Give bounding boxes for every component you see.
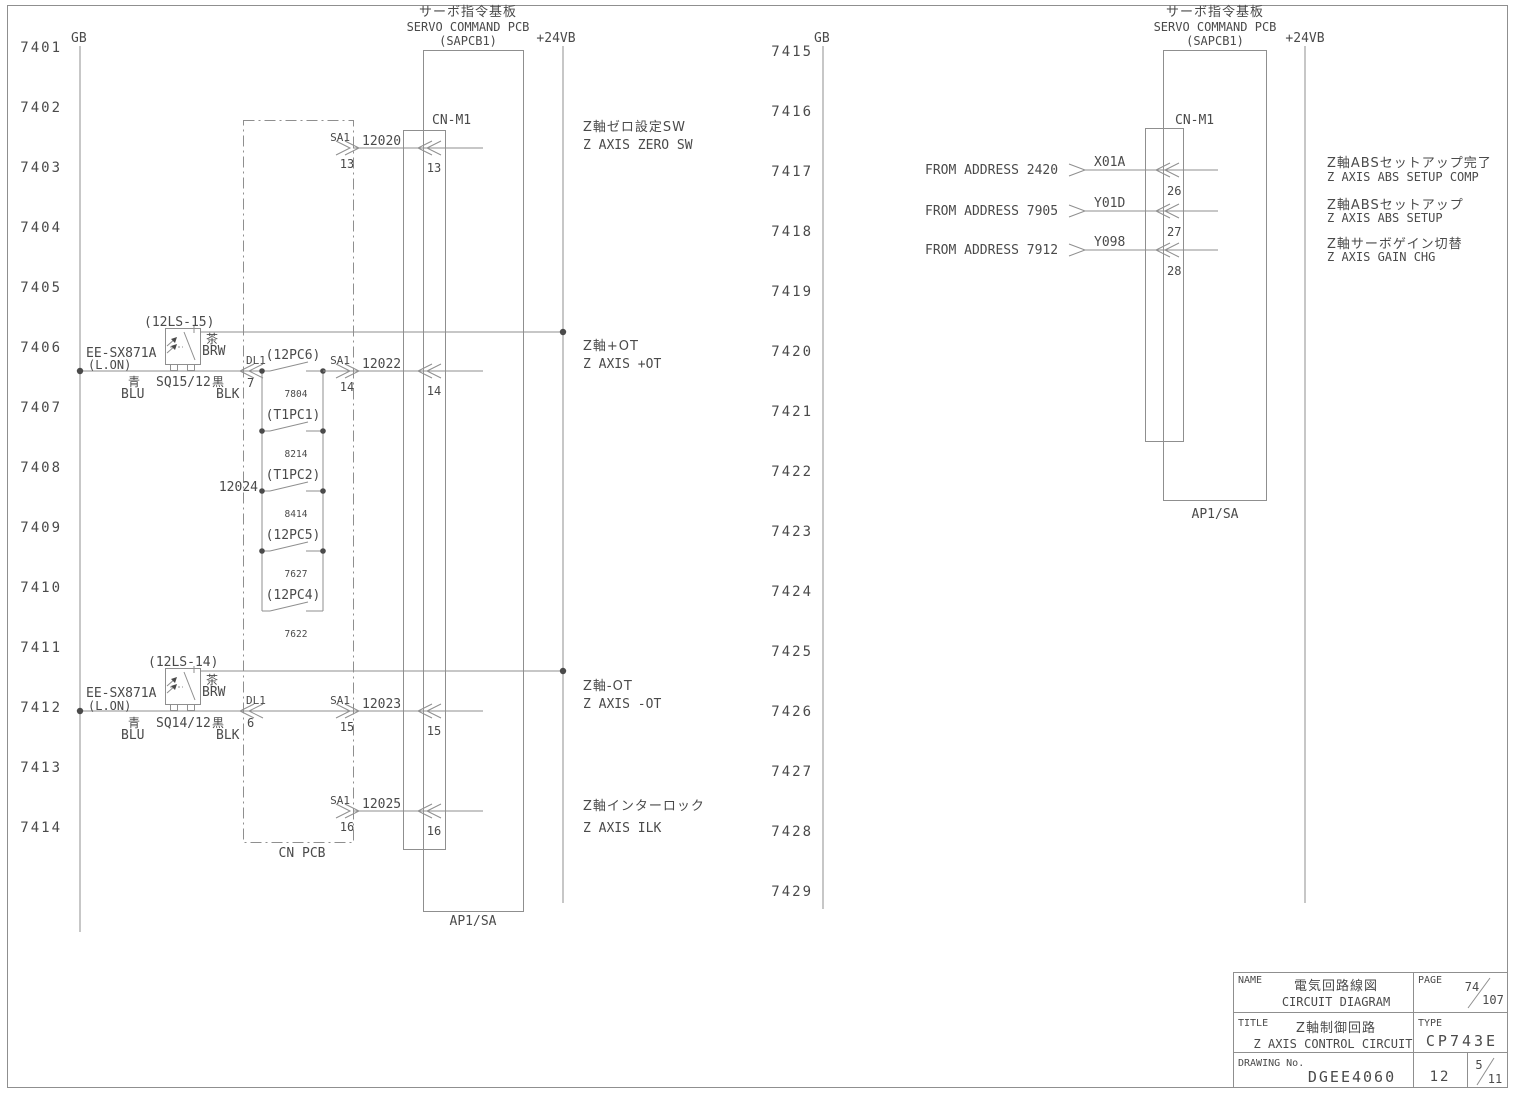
v24-label: +24VB (536, 31, 575, 46)
row-number: 7425 (771, 644, 813, 660)
signal-label-jp: Z軸ゼロ設定SW (583, 119, 686, 135)
cn-pin: 28 (1167, 264, 1181, 278)
row-number: 7413 (20, 760, 62, 776)
connector-pin: 6 (247, 716, 254, 730)
row-number: 7424 (771, 584, 813, 600)
pcb-header-right: サーボ指令基板 SERVO COMMAND PCB (SAPCB1) (1154, 5, 1277, 48)
type-value: CP743E (1426, 1032, 1498, 1050)
sheet-number: 12 (1430, 1069, 1451, 1085)
row-number: 7408 (20, 460, 62, 476)
revision-total: 11 (1488, 1072, 1502, 1086)
row-number: 7404 (20, 220, 62, 236)
row-number: 7417 (771, 164, 813, 180)
wire-number: 12020 (362, 134, 401, 149)
connector-ref: SA1 (330, 131, 350, 144)
row-number: 7412 (20, 700, 62, 716)
gb-bus-label: GB (814, 31, 830, 46)
contact-dot (320, 428, 326, 434)
cn-pin: 16 (427, 824, 441, 838)
name-field-label: NAME (1238, 975, 1262, 986)
pcb-title-en: SERVO COMMAND PCB (407, 20, 530, 34)
sensor-mode: (L.ON) (88, 358, 131, 372)
wire-number: 12022 (362, 357, 401, 372)
wire-color: BLK (216, 387, 240, 402)
sensor-tag: SQ15/12 (156, 375, 211, 390)
row-number: 7420 (771, 344, 813, 360)
row-number: 7429 (771, 884, 813, 900)
signal-label-en: Z AXIS GAIN CHG (1327, 250, 1435, 264)
circuit-diagram-canvas: 7401 7402 7403 7404 7405 7406 7407 7408 … (0, 0, 1514, 1093)
wire-number: Y098 (1094, 235, 1125, 250)
sensor-terminal (188, 365, 195, 371)
pcb-bottom-label: AP1/SA (450, 914, 497, 929)
wire-color: BRW (202, 344, 226, 359)
connector-box (404, 131, 446, 850)
row-number: 7401 (20, 40, 62, 56)
type-field-label: TYPE (1418, 1018, 1442, 1029)
circuit-diagram-page: 7401 7402 7403 7404 7405 7406 7407 7408 … (0, 0, 1514, 1093)
signal-row-gain-chg: FROM ADDRESS 7912 Y098 28 Z軸サーボゲイン切替 Z A… (925, 235, 1463, 278)
no-contact (262, 362, 323, 371)
pcb-box (424, 51, 524, 912)
row-number: 7423 (771, 524, 813, 540)
connector-ref: DL1 (246, 354, 266, 367)
connector-pin: 13 (340, 157, 354, 171)
photo-sensor-12ls14: (12LS-14) EE-SX871A (L.ON) 茶 BRW 青 BLU S… (77, 655, 566, 743)
row-number: 7419 (771, 284, 813, 300)
row-number: 7428 (771, 824, 813, 840)
row-number: 7418 (771, 224, 813, 240)
contact-label: (T1PC1) (266, 408, 321, 423)
junction-dot (560, 329, 566, 335)
connector-ref: SA1 (330, 794, 350, 807)
row-number: 7405 (20, 280, 62, 296)
cn-pin: 14 (427, 384, 441, 398)
right-row-numbers: 7415 7416 7417 7418 7419 7420 7421 7422 … (771, 44, 813, 900)
sensor-mirror-line (184, 332, 195, 360)
title-block: NAME 電気回路線図 CIRCUIT DIAGRAM PAGE 74 107 … (1234, 973, 1508, 1088)
no-contact (262, 482, 323, 491)
wire-number: 12025 (362, 797, 401, 812)
sensor-mode: (L.ON) (88, 699, 131, 713)
pcb-title-sub: (SAPCB1) (439, 34, 497, 48)
wire-color: BLK (216, 728, 240, 743)
contact-number: 8414 (285, 509, 308, 520)
row-number: 7426 (771, 704, 813, 720)
row-number: 7415 (771, 44, 813, 60)
wire-color: BLU (121, 387, 144, 402)
page-field-label: PAGE (1418, 975, 1442, 986)
cn-pin: 13 (427, 161, 441, 175)
signal-label-en: Z AXIS +OT (583, 357, 661, 372)
photo-sensor-12ls15: (12LS-15) EE-SX871A (L.ON) 茶 BRW 青 BLU S… (77, 315, 566, 402)
signal-label-jp: Z軸-OT (583, 679, 633, 694)
connector-pin: 15 (340, 720, 354, 734)
row-number: 7403 (20, 160, 62, 176)
source-chevron (1069, 205, 1085, 217)
branch-wire-number: 12024 (219, 480, 258, 495)
cn-pin: 26 (1167, 184, 1181, 198)
row-number: 7410 (20, 580, 62, 596)
junction-dot (77, 708, 83, 714)
drawing-title-en: Z AXIS CONTROL CIRCUIT (1254, 1037, 1413, 1051)
row-number: 7427 (771, 764, 813, 780)
signal-label-en: Z AXIS -OT (583, 697, 661, 712)
wire-number: 12023 (362, 697, 401, 712)
drawing-name-jp: 電気回路線図 (1294, 978, 1378, 994)
signal-row-abs-setup: FROM ADDRESS 7905 Y01D 27 Z軸ABSセットアップ Z … (925, 196, 1464, 239)
signal-row-plus-ot: SA1 12022 14 14 Z軸+OT Z AXIS +OT (323, 339, 661, 398)
signal-row-minus-ot: SA1 12023 15 15 Z軸-OT Z AXIS -OT (330, 679, 661, 738)
from-address-label: FROM ADDRESS 7905 (925, 204, 1058, 219)
cn-pcb-label: CN PCB (279, 846, 326, 861)
row-number: 7416 (771, 104, 813, 120)
contact-label: (12PC4) (266, 588, 321, 603)
wire-color: BLU (121, 728, 144, 743)
sensor-tag: SQ14/12 (156, 716, 211, 731)
row-number: 7406 (20, 340, 62, 356)
no-contact (262, 422, 323, 431)
page-number: 74 (1465, 980, 1479, 994)
page-border (8, 6, 1508, 1088)
signal-label-jp: Z軸+OT (583, 339, 639, 354)
contact-number: 7622 (285, 629, 308, 640)
connector-label: CN-M1 (1175, 113, 1214, 128)
row-number: 7414 (20, 820, 62, 836)
signal-label-en: Z AXIS ABS SETUP (1327, 211, 1443, 225)
pcb-title-sub: (SAPCB1) (1186, 34, 1244, 48)
contact-number: 7804 (285, 389, 308, 400)
row-number: 7407 (20, 400, 62, 416)
signal-label-en: Z AXIS ILK (583, 821, 661, 836)
contact-label: (12PC5) (266, 528, 321, 543)
sensor-mirror-line (184, 672, 195, 700)
revision-number: 5 (1475, 1058, 1482, 1072)
signal-label-en: Z AXIS ZERO SW (583, 138, 693, 153)
sensor-ref: (12LS-15) (144, 315, 214, 330)
cn-pin: 27 (1167, 225, 1181, 239)
sensor-terminal (188, 705, 195, 711)
connector-pin: 7 (247, 376, 254, 390)
wire-number: Y01D (1094, 196, 1125, 211)
contact-dot (259, 548, 265, 554)
page-total: 107 (1482, 993, 1504, 1007)
signal-row-abs-setup-comp: FROM ADDRESS 2420 X01A 26 Z軸ABSセットアップ完了 … (925, 155, 1492, 198)
pcb-bottom-label: AP1/SA (1192, 507, 1239, 522)
from-address-label: FROM ADDRESS 2420 (925, 163, 1058, 178)
connector-box (1146, 129, 1184, 442)
drawing-title-jp: Z軸制御回路 (1296, 1020, 1376, 1036)
connector-label: CN-M1 (432, 113, 471, 128)
row-number: 7411 (20, 640, 62, 656)
drawing-number: DGEE4060 (1308, 1068, 1396, 1086)
junction-dot (77, 368, 83, 374)
pcb-title-jp: サーボ指令基板 (419, 5, 517, 20)
connector-ref: DL1 (246, 694, 266, 707)
signal-label-jp: Z軸ABSセットアップ完了 (1327, 156, 1492, 171)
gb-bus-label: GB (71, 31, 87, 46)
drawing-no-field-label: DRAWING No. (1238, 1058, 1304, 1069)
row-number: 7421 (771, 404, 813, 420)
no-contact (262, 542, 323, 551)
cn-pin: 15 (427, 724, 441, 738)
sensor-terminal (171, 705, 178, 711)
contact-number: 8214 (285, 449, 308, 460)
sensor-terminal (171, 365, 178, 371)
signal-row-zero-sw: SA1 12020 13 13 Z軸ゼロ設定SW Z AXIS ZERO SW (330, 119, 693, 175)
contact-dot (259, 368, 265, 374)
contact-dot (320, 548, 326, 554)
contact-dot (259, 488, 265, 494)
contact-dot (259, 428, 265, 434)
connector-pin: 14 (340, 380, 354, 394)
connector-ref: SA1 (330, 694, 350, 707)
pcb-title-jp: サーボ指令基板 (1166, 5, 1264, 20)
signal-row-interlock: SA1 12025 16 16 Z軸インターロック Z AXIS ILK (330, 794, 705, 838)
from-address-label: FROM ADDRESS 7912 (925, 243, 1058, 258)
wire-color: BRW (202, 685, 226, 700)
source-chevron (1069, 244, 1085, 256)
wire-number: X01A (1094, 155, 1125, 170)
contact-dot (320, 488, 326, 494)
sensor-ref: (12LS-14) (148, 655, 218, 670)
row-number: 7422 (771, 464, 813, 480)
connector-ref: SA1 (330, 354, 350, 367)
contact-number: 7627 (285, 569, 308, 580)
drawing-name-en: CIRCUIT DIAGRAM (1282, 995, 1390, 1009)
title-field-label: TITLE (1238, 1018, 1268, 1029)
junction-dot (560, 668, 566, 674)
pcb-header-left: サーボ指令基板 SERVO COMMAND PCB (SAPCB1) (407, 5, 530, 48)
connector-pin: 16 (340, 820, 354, 834)
row-number: 7402 (20, 100, 62, 116)
signal-label-jp: Z軸インターロック (583, 799, 705, 814)
contact-label: (T1PC2) (266, 468, 321, 483)
no-contact (262, 602, 323, 611)
v24-label: +24VB (1285, 31, 1324, 46)
source-chevron (1069, 164, 1085, 176)
contact-label: (12PC6) (266, 348, 321, 363)
signal-label-en: Z AXIS ABS SETUP COMP (1327, 170, 1479, 184)
pcb-title-en: SERVO COMMAND PCB (1154, 20, 1277, 34)
left-row-numbers: 7401 7402 7403 7404 7405 7406 7407 7408 … (20, 40, 62, 836)
row-number: 7409 (20, 520, 62, 536)
